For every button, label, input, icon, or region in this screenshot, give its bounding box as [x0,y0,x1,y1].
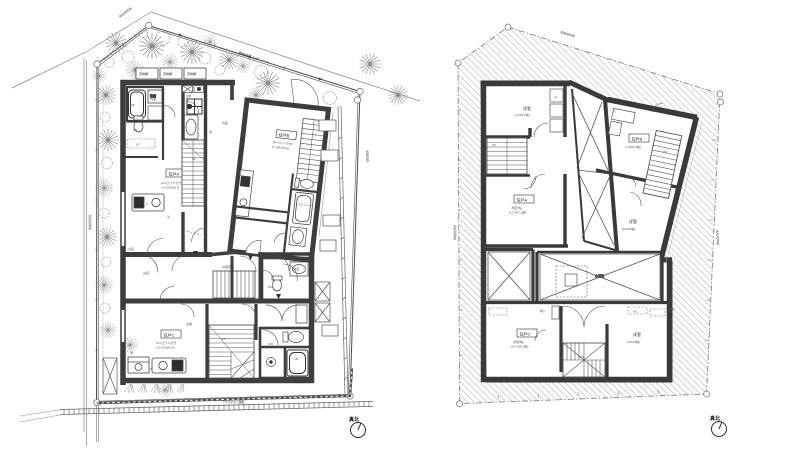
svg-text:玄関: 玄関 [186,321,192,326]
svg-text:(7.64/4.6帖): (7.64/4.6帖) [514,112,530,117]
svg-text:真北: 真北 [349,416,359,423]
svg-text:置物棚: 置物棚 [187,71,196,76]
svg-text:WC: WC [268,342,274,346]
svg-text:DN: DN [580,355,584,359]
svg-text:住戸C: 住戸C [164,332,175,338]
svg-text:(10.43/6.5帖): (10.43/6.5帖) [511,344,529,349]
svg-text:(7.8/4.8帖): (7.8/4.8帖) [626,339,640,344]
svg-text:住戸B: 住戸B [278,131,290,138]
svg-text:(-0.194㎡/6.6): (-0.194㎡/6.6) [156,345,175,350]
svg-text:K: K [146,202,148,206]
svg-text:物入: 物入 [540,309,546,313]
svg-text:隣地境界線: 隣地境界線 [452,225,457,240]
svg-text:玄関: 玄関 [186,94,192,98]
svg-text:洗面: 洗面 [294,267,300,271]
svg-text:K: K [150,367,152,371]
svg-text:道路斜線: 道路斜線 [365,150,370,162]
svg-text:1K+ロフト付き: 1K+ロフト付き [156,340,176,345]
svg-text:(11.59/7.1帖): (11.59/7.1帖) [509,210,526,215]
svg-text:住戸A: 住戸A [517,197,528,203]
svg-text:洗面: 洗面 [150,96,156,101]
svg-text:住戸C: 住戸C [520,331,531,337]
svg-text:丸庭: 丸庭 [143,270,149,275]
svg-text:UP: UP [313,132,317,136]
svg-text:丸庭: 丸庭 [128,246,134,251]
svg-text:置物棚: 置物棚 [163,71,172,76]
svg-text:隣地境界線: 隣地境界線 [715,230,721,245]
svg-text:洗: 洗 [130,350,133,355]
svg-text:WC: WC [268,285,274,289]
svg-text:住戸B: 住戸B [632,136,643,142]
svg-text:共用廊下: 共用廊下 [226,250,238,255]
svg-text:真北: 真北 [710,415,720,422]
svg-text:UP: UP [222,337,226,341]
svg-text:(-0.194㎡/6.6): (-0.194㎡/6.6) [161,185,180,190]
svg-text:洋室6帖: 洋室6帖 [513,339,524,344]
svg-text:置物棚: 置物棚 [139,71,148,76]
svg-text:CL: CL [554,95,558,99]
svg-text:冷: 冷 [167,214,170,219]
svg-text:アスファルト舗装: アスファルト舗装 [222,400,245,404]
svg-text:洋室7帖: 洋室7帖 [511,205,522,210]
svg-text:吹抜: 吹抜 [669,307,675,311]
svg-text:UP: UP [192,157,196,161]
svg-text:1K+ロフト付き: 1K+ロフト付き [161,180,181,185]
svg-text:DN: DN [492,143,496,147]
svg-text:(7.36/4.6帖): (7.36/4.6帖) [625,144,641,149]
svg-text:住戸A: 住戸A [169,171,180,177]
svg-text:洋室: 洋室 [629,218,637,224]
svg-text:UB: UB [131,103,135,107]
svg-text:丸庭: 丸庭 [222,120,228,125]
svg-text:洋室: 洋室 [523,105,531,111]
svg-text:(8.04/5帖): (8.04/5帖) [622,226,635,231]
svg-text:洗: 洗 [209,129,212,134]
svg-text:小屋裏: 小屋裏 [595,273,604,278]
svg-text:UB: UB [294,357,298,361]
svg-text:WC: WC [133,128,139,132]
svg-text:隣地境界線: 隣地境界線 [87,215,92,230]
svg-text:洋室: 洋室 [633,331,641,337]
